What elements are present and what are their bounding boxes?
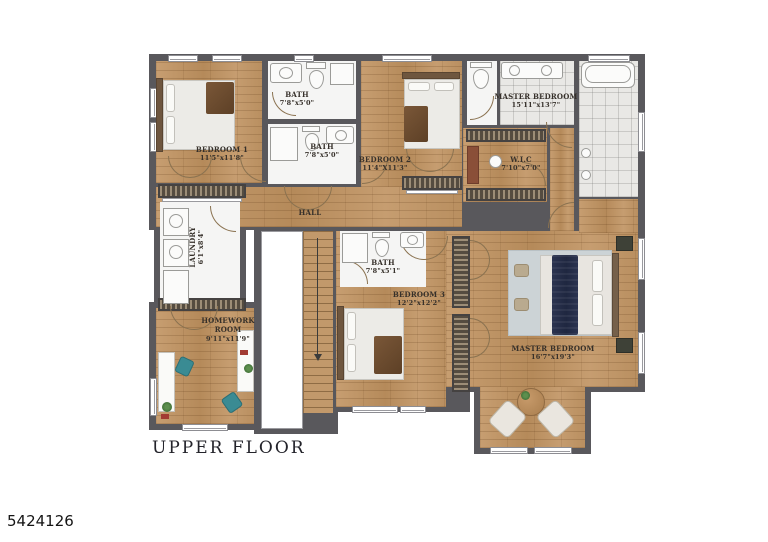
bathtub-inner bbox=[585, 65, 631, 83]
basin-master-1 bbox=[509, 65, 520, 76]
window-tubroom-right bbox=[638, 112, 645, 152]
washer-door bbox=[169, 214, 183, 228]
master-nightstand-1 bbox=[616, 236, 633, 251]
floor-master-upper bbox=[579, 199, 638, 233]
window-bedroom3-bottom-2 bbox=[400, 406, 426, 413]
master-nightstand-2 bbox=[616, 338, 633, 353]
window-bedroom1-top-2 bbox=[212, 55, 242, 62]
window-master-right-1 bbox=[638, 238, 645, 280]
toilet-tank-compartment bbox=[470, 62, 492, 68]
master-bedroom-label: MASTER BEDROOM16'7"x19'3" bbox=[498, 344, 608, 362]
bed2-throw bbox=[404, 106, 428, 142]
master-pouf-1 bbox=[514, 264, 529, 277]
master-bath-label: MASTER BEDROOM15'11"x13'7" bbox=[486, 92, 586, 110]
wic-rack-bottom bbox=[466, 188, 546, 201]
basin-bath-top bbox=[279, 67, 293, 79]
floorplan-canvas: BEDROOM 111'5"x11'8" BATH7'8"x5'0" BATH7… bbox=[0, 0, 768, 542]
toilet-tank-bath-mid bbox=[302, 126, 320, 132]
bed1-throw bbox=[206, 82, 234, 114]
closet-bedroom2-slider bbox=[406, 190, 458, 194]
master-pillow-1 bbox=[592, 260, 603, 292]
bed3-pillow-1 bbox=[347, 312, 356, 340]
closet-master-2 bbox=[452, 314, 470, 392]
closet-bedroom1-slider bbox=[162, 198, 242, 202]
window-nook-bottom-1 bbox=[490, 447, 528, 454]
homework-plant-2 bbox=[162, 402, 172, 412]
window-bath-top bbox=[294, 55, 314, 62]
bed3-headboard bbox=[337, 306, 344, 380]
closet-bedroom1 bbox=[158, 184, 246, 198]
bath3-label: BATH7'8"x5'1" bbox=[358, 258, 408, 276]
bed1-pillow-2 bbox=[166, 116, 175, 144]
nook-plant bbox=[521, 391, 530, 400]
window-homework-bottom bbox=[182, 424, 228, 431]
homework-label: HOMEWORK ROOM9'11"x11'9" bbox=[199, 316, 257, 344]
wic-dresser bbox=[467, 146, 479, 184]
floor-title: UPPER FLOOR bbox=[152, 438, 306, 458]
master-pillow-2 bbox=[592, 294, 603, 326]
staircase bbox=[303, 231, 333, 413]
window-bedroom3-bottom-1 bbox=[352, 406, 398, 413]
basin-bath-mid bbox=[335, 130, 347, 141]
laundry-label: LAUNDRY6'1"x8'4" bbox=[188, 219, 206, 275]
dryer-door bbox=[169, 245, 183, 259]
toilet-tank-bath-top bbox=[306, 62, 326, 69]
bedroom1-label: BEDROOM 111'5"x11'8" bbox=[176, 145, 268, 163]
master-headboard bbox=[612, 253, 619, 337]
master-pouf-2 bbox=[514, 298, 529, 311]
bedroom3-label: BEDROOM 312'2"x12'2" bbox=[374, 290, 464, 308]
window-bedroom2-top bbox=[382, 55, 432, 62]
shower-bath-mid bbox=[270, 127, 298, 161]
window-homework-left bbox=[150, 378, 157, 416]
basin-bath3 bbox=[407, 235, 418, 245]
shower-bath-top bbox=[330, 63, 354, 85]
homework-desk-item-2 bbox=[161, 414, 169, 419]
window-tubroom-top bbox=[588, 55, 630, 62]
window-master-right-2 bbox=[638, 332, 645, 374]
homework-desk-item-1 bbox=[240, 350, 248, 355]
bed3-pillow-2 bbox=[347, 344, 356, 372]
bedroom2-label: BEDROOM 211'4"X11'3" bbox=[344, 155, 426, 173]
bed2-headboard bbox=[402, 72, 460, 79]
bed2-pillow-2 bbox=[434, 82, 454, 91]
stairwell-void bbox=[261, 231, 303, 429]
closet-bedroom2 bbox=[402, 176, 462, 190]
basin-master-2 bbox=[541, 65, 552, 76]
shower-control-1 bbox=[581, 148, 591, 158]
shower-control-2 bbox=[581, 170, 591, 180]
window-bedroom1-top-1 bbox=[168, 55, 198, 62]
stairs-direction-arrow bbox=[314, 354, 322, 361]
bed1-pillow-1 bbox=[166, 84, 175, 112]
bath-top-label: BATH7'8"x5'0" bbox=[272, 90, 322, 108]
bed2-pillow-1 bbox=[408, 82, 430, 91]
bed3-throw bbox=[374, 336, 402, 374]
stairs-direction-line bbox=[317, 238, 318, 354]
bed1-headboard bbox=[156, 78, 163, 152]
hall-label: HALL bbox=[288, 208, 332, 217]
listing-number: 5424126 bbox=[7, 512, 74, 530]
homework-plant-1 bbox=[244, 364, 253, 373]
laundry-shelf bbox=[163, 270, 189, 304]
bath-mid-label: BATH7'8"x5'0" bbox=[296, 142, 348, 160]
wic-label: W.I.C7'10"x7'0" bbox=[484, 155, 558, 173]
window-nook-bottom-2 bbox=[534, 447, 572, 454]
toilet-tank-bath3 bbox=[372, 232, 390, 238]
master-blanket bbox=[552, 255, 578, 335]
wic-rack-top bbox=[466, 129, 546, 142]
